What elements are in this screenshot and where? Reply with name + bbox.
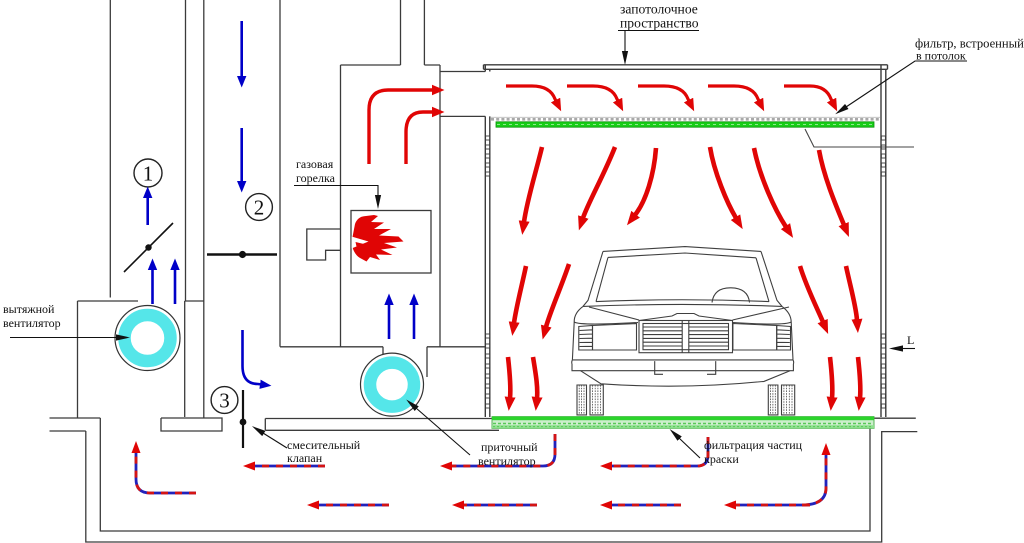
svg-text:в потолок: в потолок [916,49,966,63]
svg-text:фильтрация частиц: фильтрация частиц [704,438,803,452]
svg-text:горелка: горелка [296,171,336,185]
svg-text:вентилятор: вентилятор [478,454,536,468]
svg-text:вытяжной: вытяжной [3,302,55,316]
svg-text:вентилятор: вентилятор [3,316,61,330]
svg-text:1: 1 [143,162,154,186]
svg-text:краски: краски [704,452,739,466]
svg-text:газовая: газовая [296,157,334,171]
svg-text:L: L [907,333,914,347]
svg-text:приточный: приточный [481,440,538,454]
svg-text:3: 3 [219,389,230,413]
svg-text:запотолочное: запотолочное [620,2,698,17]
svg-text:пространство: пространство [620,16,699,31]
svg-text:смесительный: смесительный [287,438,361,452]
svg-text:2: 2 [254,196,265,220]
svg-text:клапан: клапан [287,451,323,465]
